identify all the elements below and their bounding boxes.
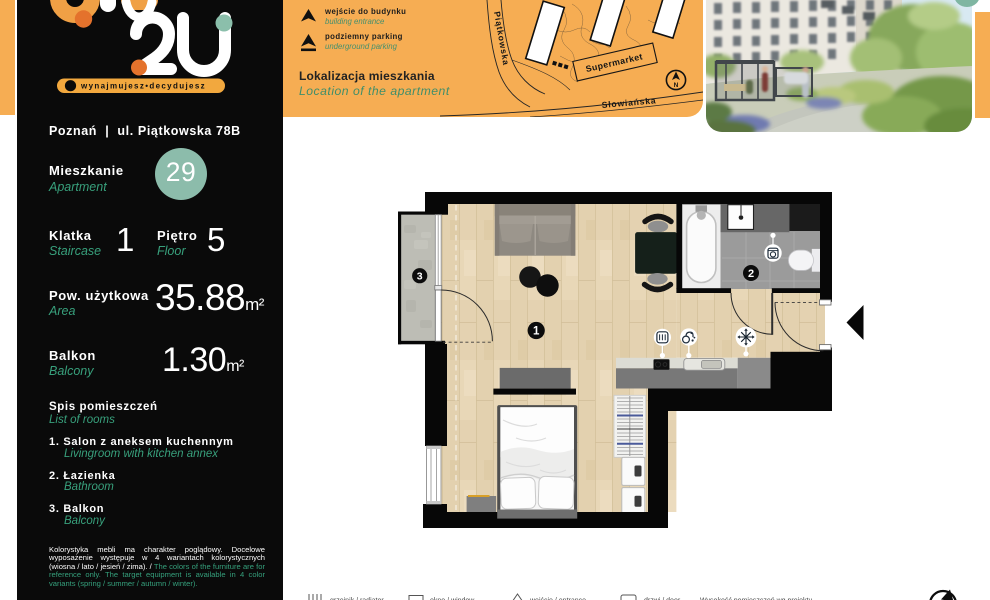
svg-text:2: 2 <box>748 268 754 280</box>
svg-text:1: 1 <box>533 326 540 338</box>
svg-text:3: 3 <box>417 271 423 283</box>
